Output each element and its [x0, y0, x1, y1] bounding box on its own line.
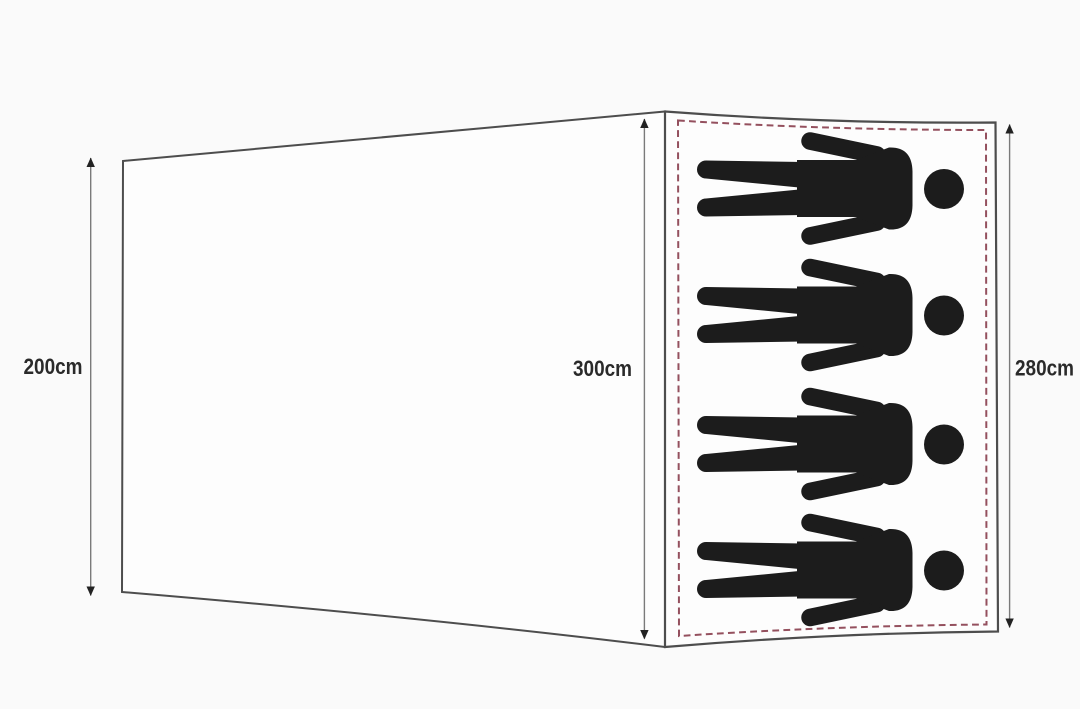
svg-text:200cm: 200cm — [24, 354, 83, 379]
svg-text:280cm: 280cm — [1015, 356, 1074, 381]
svg-text:300cm: 300cm — [573, 356, 632, 381]
